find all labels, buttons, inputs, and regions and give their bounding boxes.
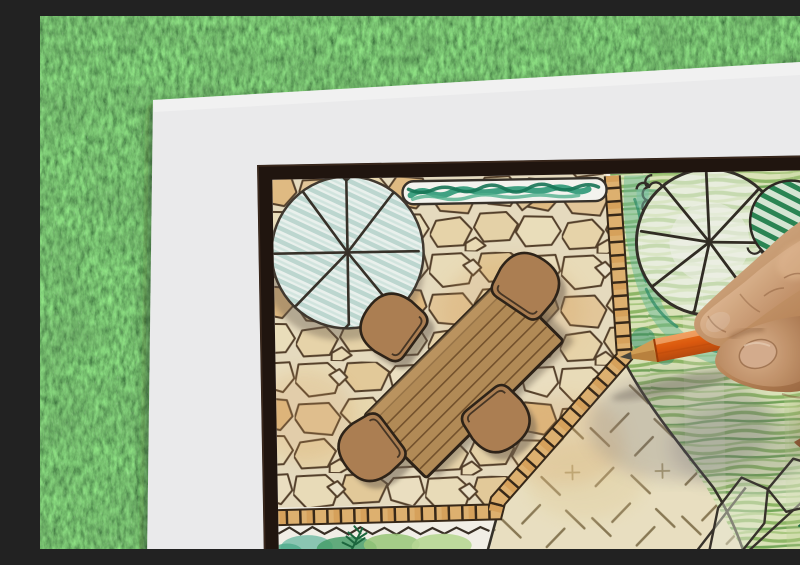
scene-photo <box>40 16 800 549</box>
vignette <box>40 16 800 549</box>
garden-plan-photo <box>40 16 800 549</box>
